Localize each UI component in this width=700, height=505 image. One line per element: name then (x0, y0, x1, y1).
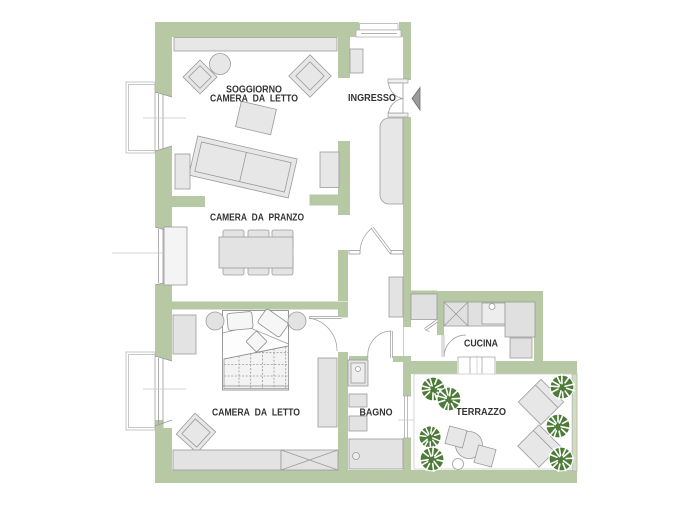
svg-text:TERRAZZO: TERRAZZO (456, 407, 506, 418)
svg-text:INGRESSO: INGRESSO (348, 93, 396, 104)
svg-text:CAMERA DA LETTO: CAMERA DA LETTO (210, 94, 298, 105)
svg-text:CAMERA DA PRANZO: CAMERA DA PRANZO (210, 213, 304, 224)
svg-text:CAMERA DA LETTO: CAMERA DA LETTO (212, 408, 300, 419)
svg-text:BAGNO: BAGNO (360, 408, 393, 419)
svg-text:CUCINA: CUCINA (464, 339, 499, 350)
